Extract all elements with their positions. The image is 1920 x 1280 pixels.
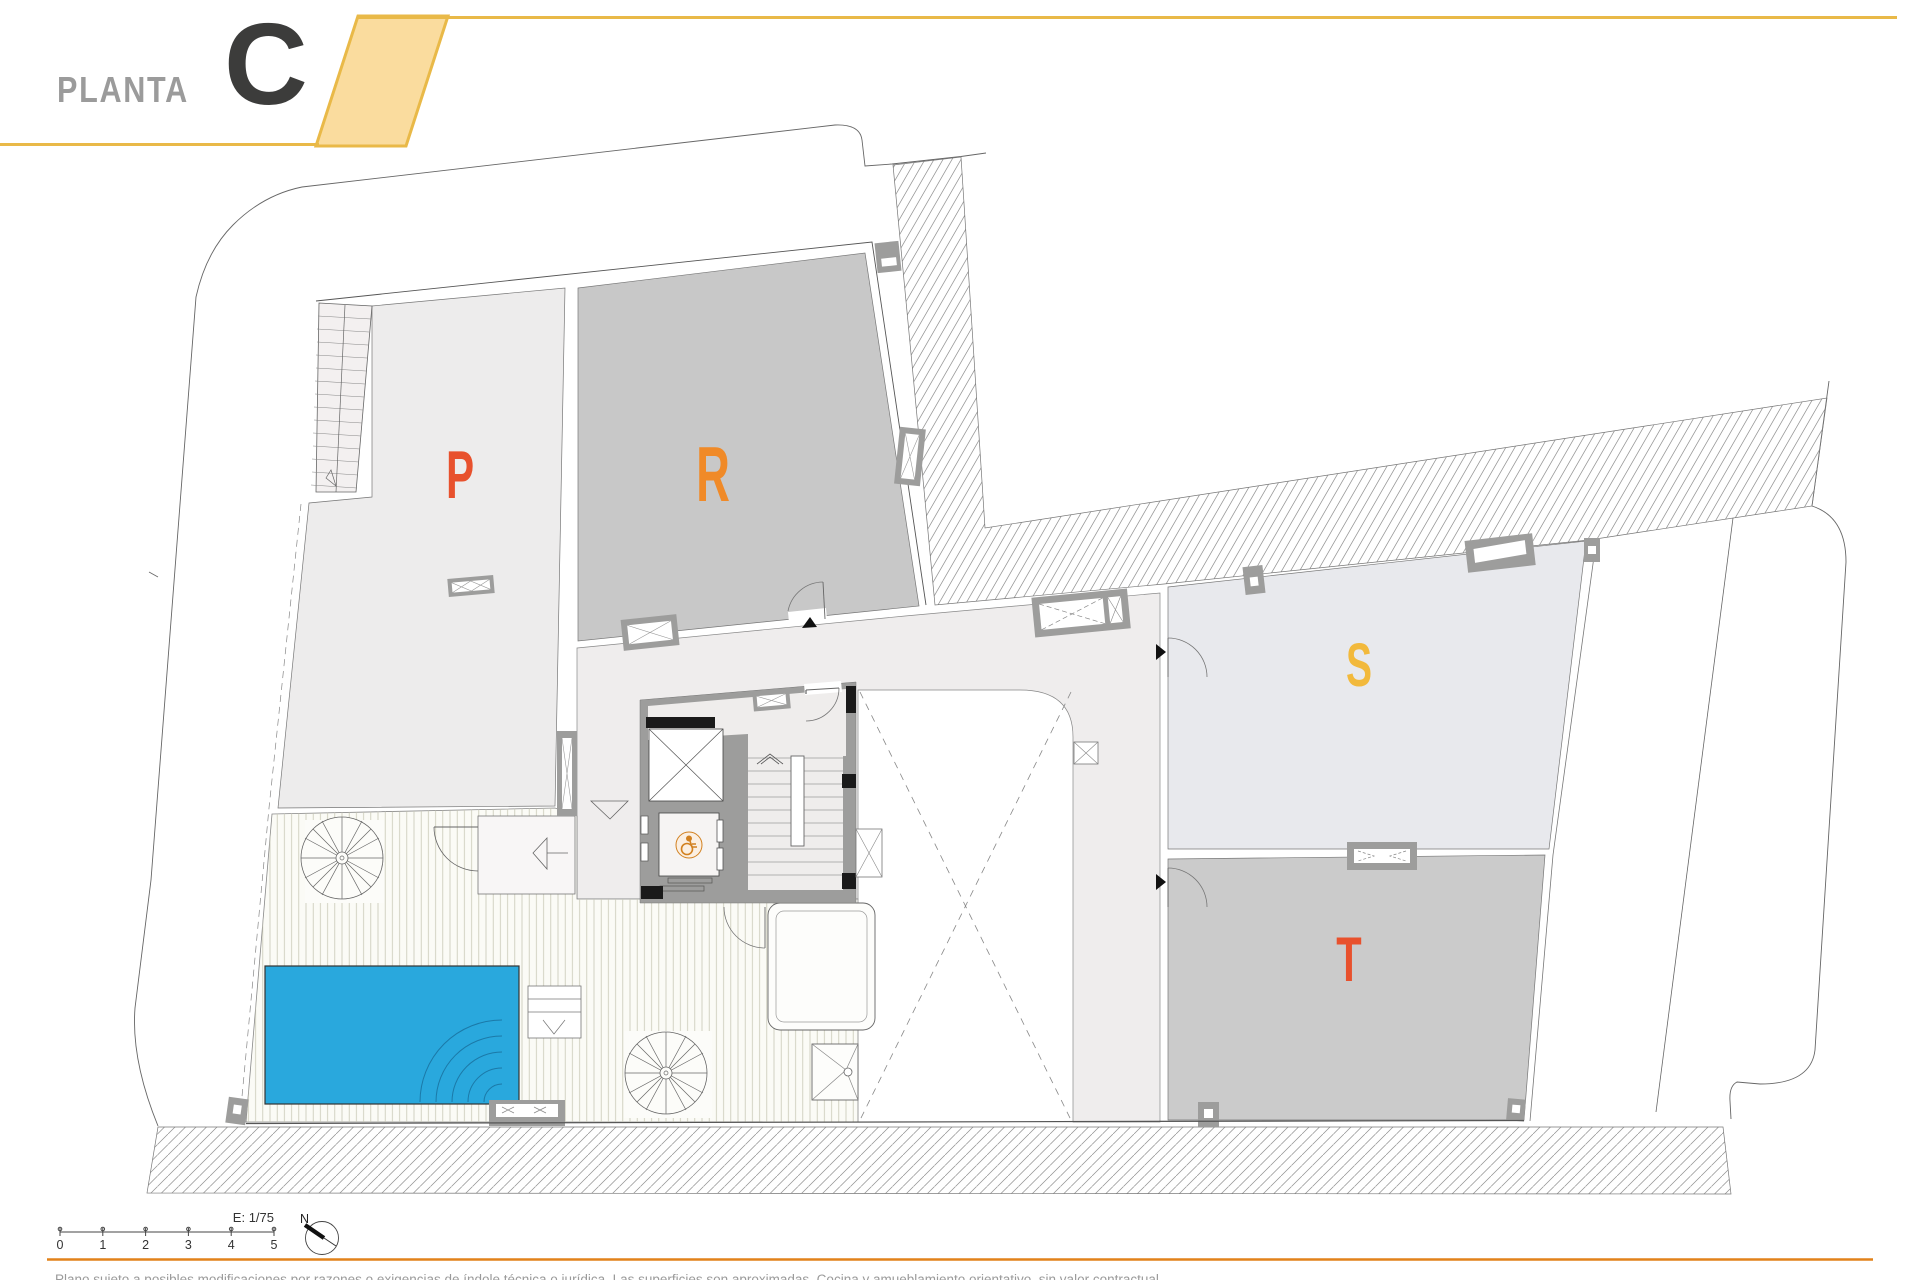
svg-text:S: S [1346, 631, 1372, 699]
svg-text:T: T [1336, 926, 1362, 996]
svg-text:PLANTA: PLANTA [57, 71, 189, 111]
svg-text:C: C [224, 0, 308, 129]
svg-text:0: 0 [57, 1238, 64, 1252]
svg-text:P: P [446, 437, 474, 513]
svg-text:E: 1/75: E: 1/75 [233, 1210, 274, 1225]
svg-text:2: 2 [142, 1238, 149, 1252]
svg-text:4: 4 [228, 1238, 235, 1252]
svg-text:3: 3 [185, 1238, 192, 1252]
svg-text:N: N [300, 1212, 309, 1226]
svg-text:1: 1 [99, 1238, 106, 1252]
svg-text:Plano sujeto a posibles modifi: Plano sujeto a posibles modificaciones p… [55, 1272, 1163, 1280]
svg-text:5: 5 [271, 1238, 278, 1252]
svg-text:R: R [696, 431, 730, 518]
